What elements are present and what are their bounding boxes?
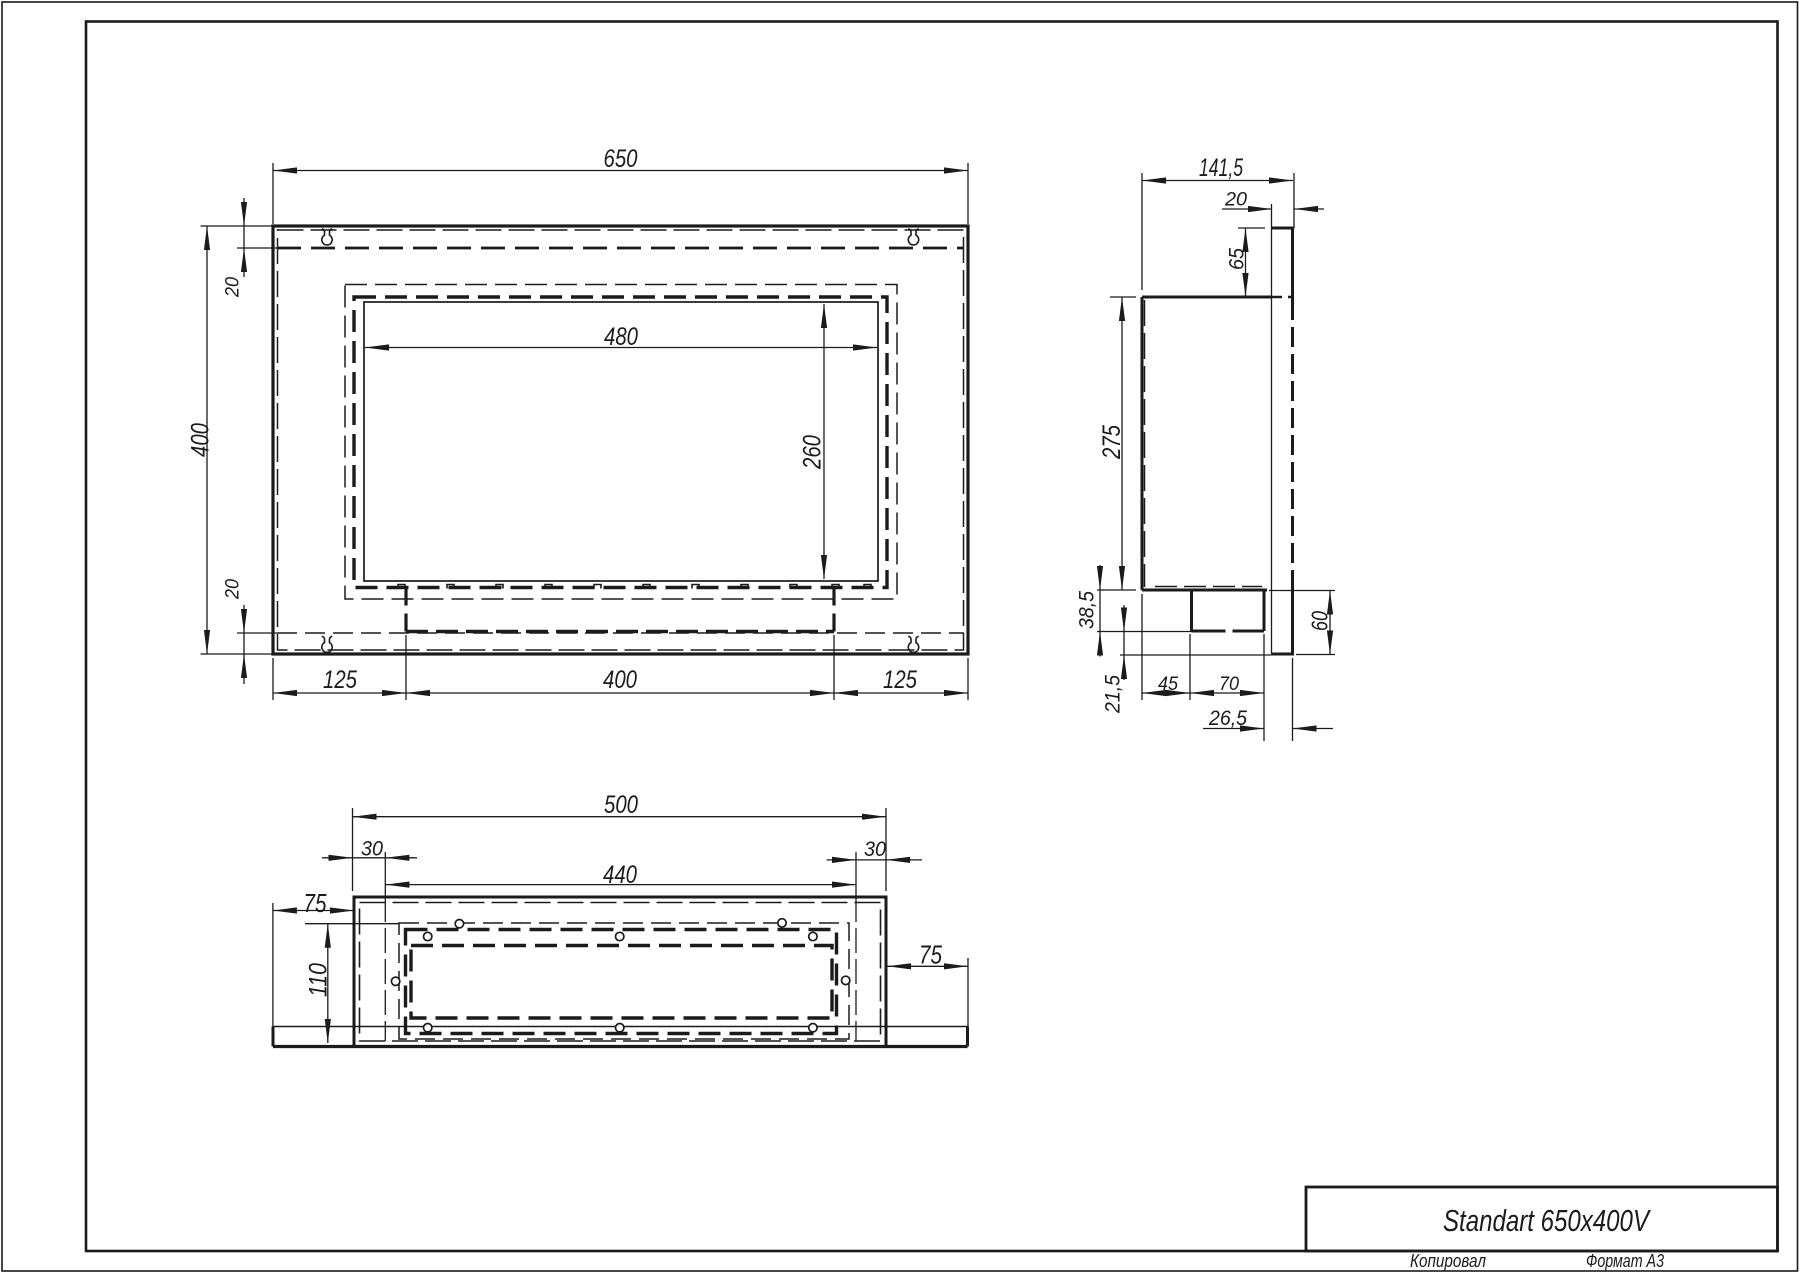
svg-text:440: 440 [603,861,637,889]
svg-text:125: 125 [323,666,357,694]
svg-text:Формат А3: Формат А3 [1586,1251,1664,1271]
svg-text:65: 65 [1226,248,1249,270]
svg-text:20: 20 [1224,190,1247,211]
svg-text:75: 75 [919,940,942,970]
svg-text:Копировал: Копировал [1410,1251,1486,1271]
svg-text:20: 20 [223,277,244,298]
svg-text:500: 500 [604,791,638,819]
svg-text:60: 60 [1307,611,1333,631]
svg-text:26,5: 26,5 [1208,707,1247,730]
svg-text:125: 125 [883,666,917,694]
svg-text:275: 275 [1098,425,1126,460]
svg-text:110: 110 [305,963,333,997]
svg-text:30: 30 [361,837,383,860]
svg-text:141,5: 141,5 [1199,154,1243,182]
svg-text:260: 260 [799,435,827,470]
svg-text:45: 45 [1158,674,1178,695]
svg-text:70: 70 [1219,674,1239,695]
svg-text:480: 480 [604,323,638,351]
svg-text:400: 400 [603,666,637,694]
svg-text:75: 75 [304,888,327,918]
svg-text:400: 400 [187,423,215,457]
svg-text:21,5: 21,5 [1102,675,1125,714]
svg-text:650: 650 [604,145,638,173]
svg-text:20: 20 [223,579,244,600]
svg-text:Standart 650x400V: Standart 650x400V [1443,1203,1652,1238]
svg-text:38,5: 38,5 [1076,591,1099,629]
svg-text:30: 30 [864,838,886,861]
